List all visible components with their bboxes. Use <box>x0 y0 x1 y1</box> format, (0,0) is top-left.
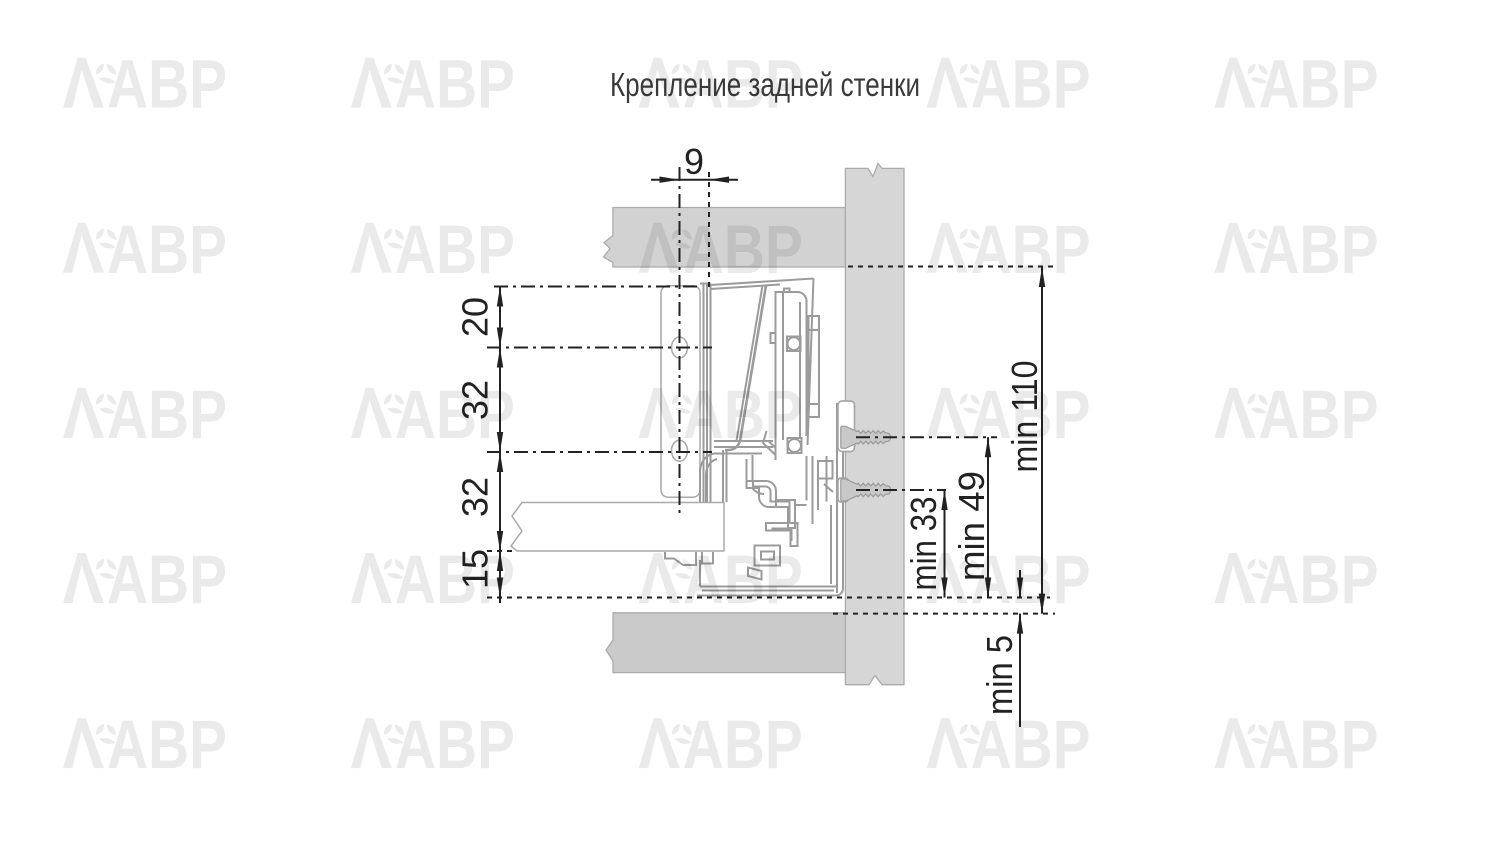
svg-text:32: 32 <box>455 477 496 517</box>
svg-text:min 5: min 5 <box>979 635 1020 715</box>
svg-text:20: 20 <box>455 297 496 337</box>
svg-text:9: 9 <box>684 141 704 182</box>
